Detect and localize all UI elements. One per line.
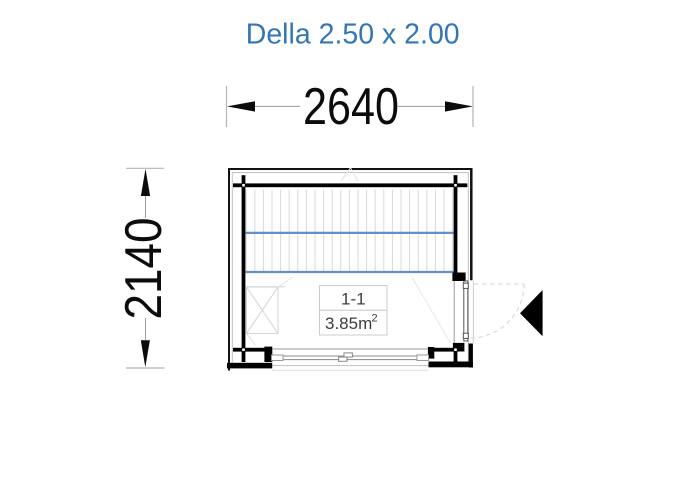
- svg-text:2: 2: [372, 312, 378, 324]
- svg-text:3.85m: 3.85m: [325, 314, 372, 333]
- svg-text:2640: 2640: [303, 77, 399, 135]
- svg-text:1-1: 1-1: [341, 290, 366, 309]
- svg-text:Della 2.50 x 2.00: Della 2.50 x 2.00: [246, 19, 460, 51]
- svg-text:2140: 2140: [114, 218, 172, 320]
